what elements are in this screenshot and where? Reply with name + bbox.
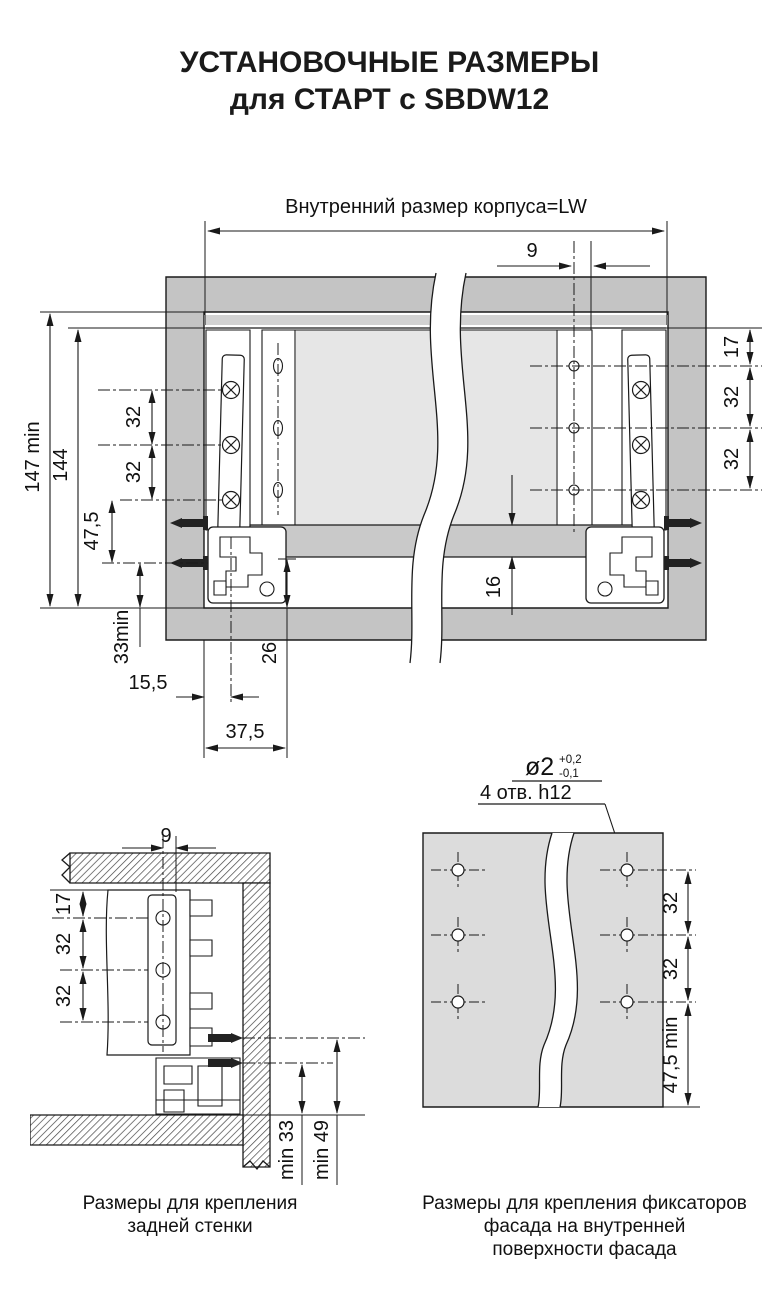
title-line2: для СТАРТ с SBDW12 bbox=[0, 81, 779, 118]
dim-47-5-label: 47,5 bbox=[81, 512, 103, 551]
dim-32-2-label: 32 bbox=[660, 958, 682, 980]
break-mark bbox=[62, 853, 70, 883]
dim-16-label: 16 bbox=[483, 576, 505, 598]
dim-32-left-1-label: 32 bbox=[123, 406, 145, 428]
facade-caption-line2: фасада на внутренней bbox=[392, 1215, 777, 1238]
dim-32-2-label: 32 bbox=[53, 985, 75, 1007]
back-wall-mounting-diagram: 9 17 32 32 min 33 min 49 bbox=[30, 800, 390, 1192]
dim-32-1-label: 32 bbox=[660, 892, 682, 914]
left-latch bbox=[208, 527, 286, 603]
back-wall-caption: Размеры для крепления задней стенки bbox=[10, 1192, 370, 1238]
dim-147min-label: 147 min bbox=[22, 421, 44, 492]
dim-min49-label: min 49 bbox=[311, 1120, 333, 1180]
page-title: УСТАНОВОЧНЫЕ РАЗМЕРЫ для СТАРТ с SBDW12 bbox=[0, 44, 779, 118]
facade-fixator-diagram: ø2 +0,2 -0,1 4 отв. h12 bbox=[400, 735, 779, 1165]
dim-47-5min-label: 47,5 min bbox=[660, 1017, 682, 1094]
facade-caption: Размеры для крепления фиксаторов фасада … bbox=[392, 1192, 777, 1261]
hole-count-label: 4 отв. h12 bbox=[480, 782, 572, 804]
dim-32-1-label: 32 bbox=[53, 933, 75, 955]
hole-diameter-label: ø2 bbox=[525, 753, 554, 781]
title-line1: УСТАНОВОЧНЫЕ РАЗМЕРЫ bbox=[0, 44, 779, 81]
back-wall-section bbox=[243, 883, 270, 1167]
lw-dimension-label: Внутренний размер корпуса=LW bbox=[285, 196, 587, 218]
bottom-panel-section bbox=[30, 1115, 243, 1145]
dim-min33-label: min 33 bbox=[276, 1120, 298, 1180]
back-wall-caption-line1: Размеры для крепления bbox=[10, 1192, 370, 1215]
dim-9-label: 9 bbox=[160, 825, 171, 847]
dim-15-5-label: 15,5 bbox=[129, 672, 168, 694]
dim-32-right-2-label: 32 bbox=[721, 448, 743, 470]
dim-33min-label: 33min bbox=[111, 610, 133, 664]
main-installation-diagram: Внутренний размер корпуса=LW 9 32 32 47,… bbox=[0, 185, 779, 785]
dim-37-5-label: 37,5 bbox=[226, 721, 265, 743]
dim-17-label: 17 bbox=[53, 893, 75, 915]
hole-tolerance-plus: +0,2 bbox=[559, 754, 582, 766]
facade-caption-line1: Размеры для крепления фиксаторов bbox=[392, 1192, 777, 1215]
cabinet-top-panel-section bbox=[70, 853, 270, 883]
hole-tolerance-minus: -0,1 bbox=[559, 768, 579, 780]
dim-26-label: 26 bbox=[259, 642, 281, 664]
back-wall-caption-line2: задней стенки bbox=[10, 1215, 370, 1238]
drawer-bottom-panel bbox=[295, 330, 557, 525]
facade-caption-line3: поверхности фасада bbox=[392, 1238, 777, 1261]
page: УСТАНОВОЧНЫЕ РАЗМЕРЫ для СТАРТ с SBDW12 bbox=[0, 0, 779, 1292]
dim-144-label: 144 bbox=[50, 448, 72, 481]
dim-32-right-1-label: 32 bbox=[721, 386, 743, 408]
upper-screw-icon bbox=[208, 1033, 243, 1043]
dim-32-left-2-label: 32 bbox=[123, 461, 145, 483]
dim-9-label: 9 bbox=[526, 240, 537, 262]
right-latch bbox=[586, 527, 664, 603]
dim-17-label: 17 bbox=[721, 336, 743, 358]
rail-hooks bbox=[190, 900, 212, 1046]
